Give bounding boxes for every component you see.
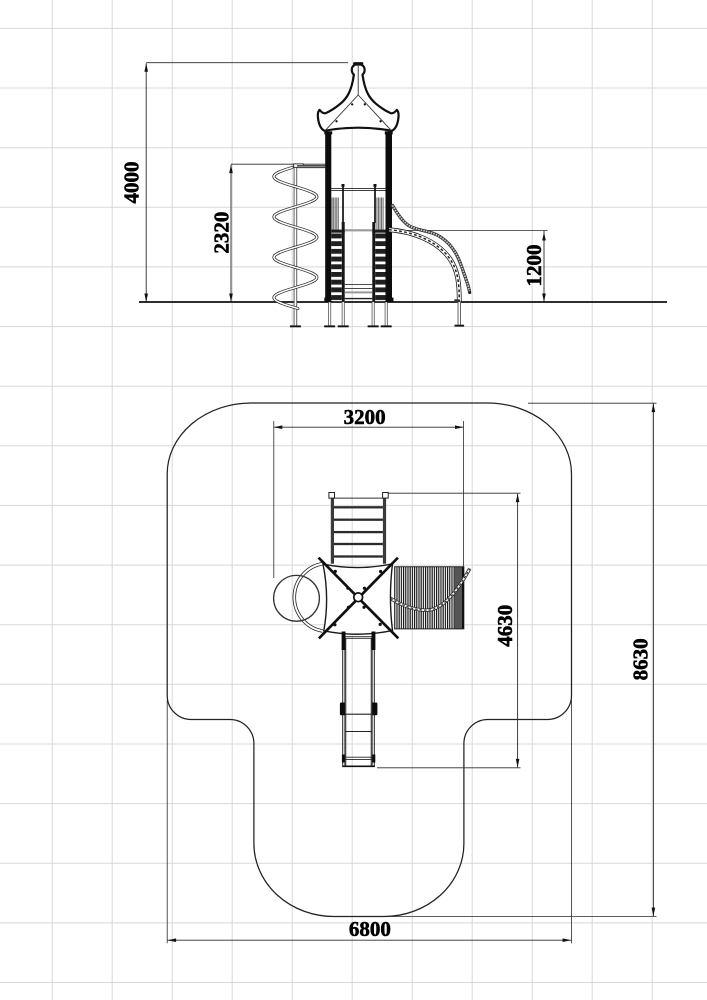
svg-text:3200: 3200 (344, 405, 386, 429)
svg-text:2320: 2320 (210, 212, 234, 254)
svg-text:1200: 1200 (522, 245, 546, 287)
svg-text:4630: 4630 (493, 605, 517, 647)
svg-text:8630: 8630 (629, 638, 653, 680)
svg-text:4000: 4000 (120, 162, 144, 204)
svg-text:6800: 6800 (349, 917, 391, 941)
